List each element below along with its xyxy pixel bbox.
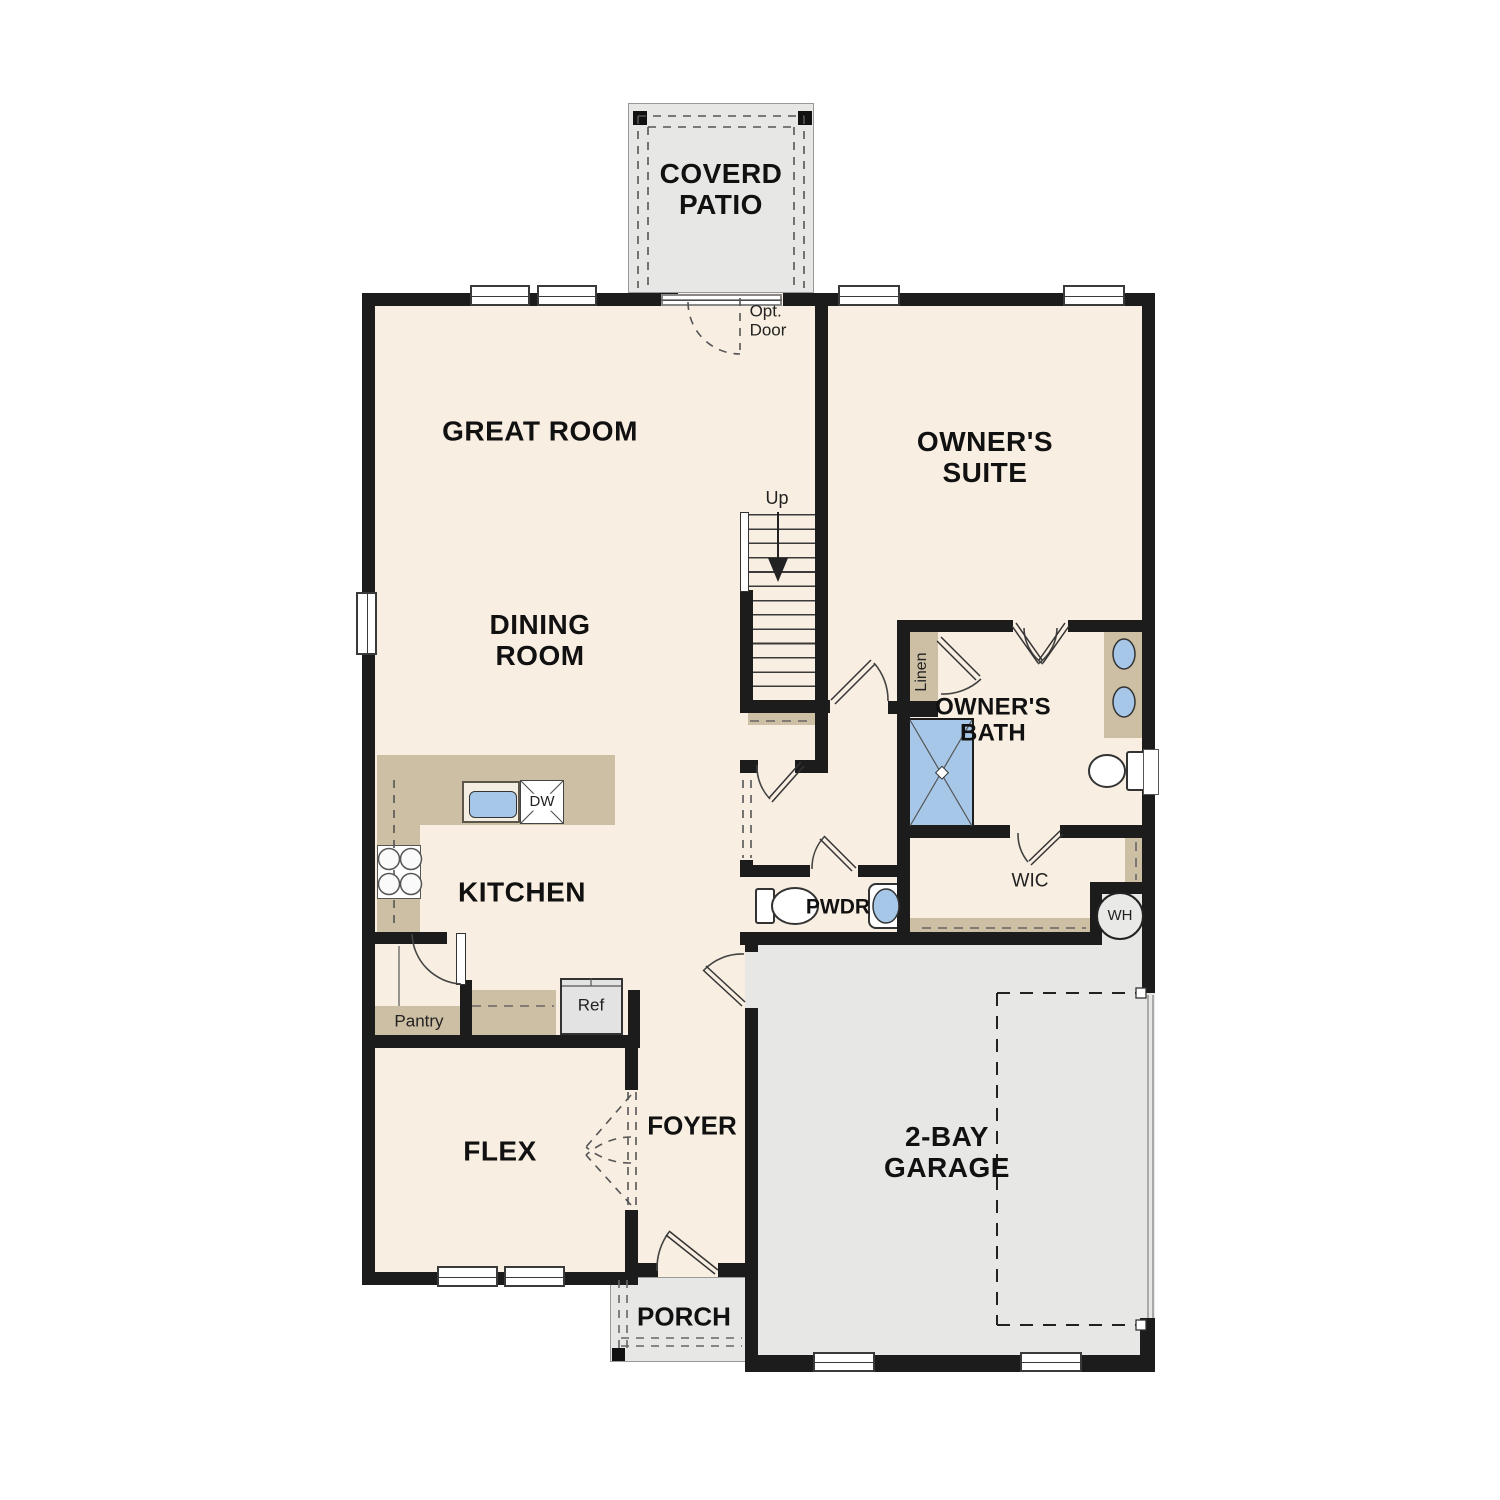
annotation-opt-door: Opt. Door bbox=[750, 302, 787, 339]
annotation-up: Up bbox=[765, 489, 788, 509]
room-label-covered-patio: COVERD PATIO bbox=[660, 159, 783, 221]
floorplan-canvas: COVERD PATIO Opt. Door GREAT ROOM OWNER'… bbox=[0, 0, 1500, 1500]
garage-option-dashed bbox=[997, 993, 1140, 1325]
stove-burners bbox=[379, 849, 422, 895]
shelf-dashed-lines bbox=[472, 721, 1136, 1006]
room-label-garage: 2-BAY GARAGE bbox=[884, 1122, 1010, 1184]
room-label-owners-bath: OWNER'S BATH bbox=[935, 695, 1051, 748]
annotation-pantry: Pantry bbox=[394, 1013, 443, 1032]
room-label-great-room: GREAT ROOM bbox=[442, 417, 638, 448]
stair-arrow bbox=[768, 512, 788, 582]
room-label-pwdr: PWDR bbox=[806, 895, 870, 918]
garage-thin-edge bbox=[1148, 995, 1153, 1318]
option-marker bbox=[1136, 988, 1146, 998]
annotation-water-heater: WH bbox=[1108, 908, 1133, 925]
annotation-linen: Linen bbox=[913, 652, 931, 691]
room-label-dining-room: DINING ROOM bbox=[490, 610, 591, 672]
annotation-refrigerator: Ref bbox=[578, 997, 604, 1016]
floorplan-linework bbox=[0, 0, 1500, 1500]
room-label-flex: FLEX bbox=[463, 1137, 537, 1168]
room-label-owners-suite: OWNER'S SUITE bbox=[917, 427, 1053, 489]
annotation-dishwasher: DW bbox=[528, 794, 557, 811]
bath-fixture-shapes bbox=[1089, 639, 1135, 787]
option-marker bbox=[1136, 1320, 1146, 1330]
room-label-porch: PORCH bbox=[637, 1303, 731, 1332]
room-label-wic: WIC bbox=[1012, 872, 1049, 893]
room-label-kitchen: KITCHEN bbox=[458, 878, 586, 909]
room-label-foyer: FOYER bbox=[647, 1112, 737, 1141]
